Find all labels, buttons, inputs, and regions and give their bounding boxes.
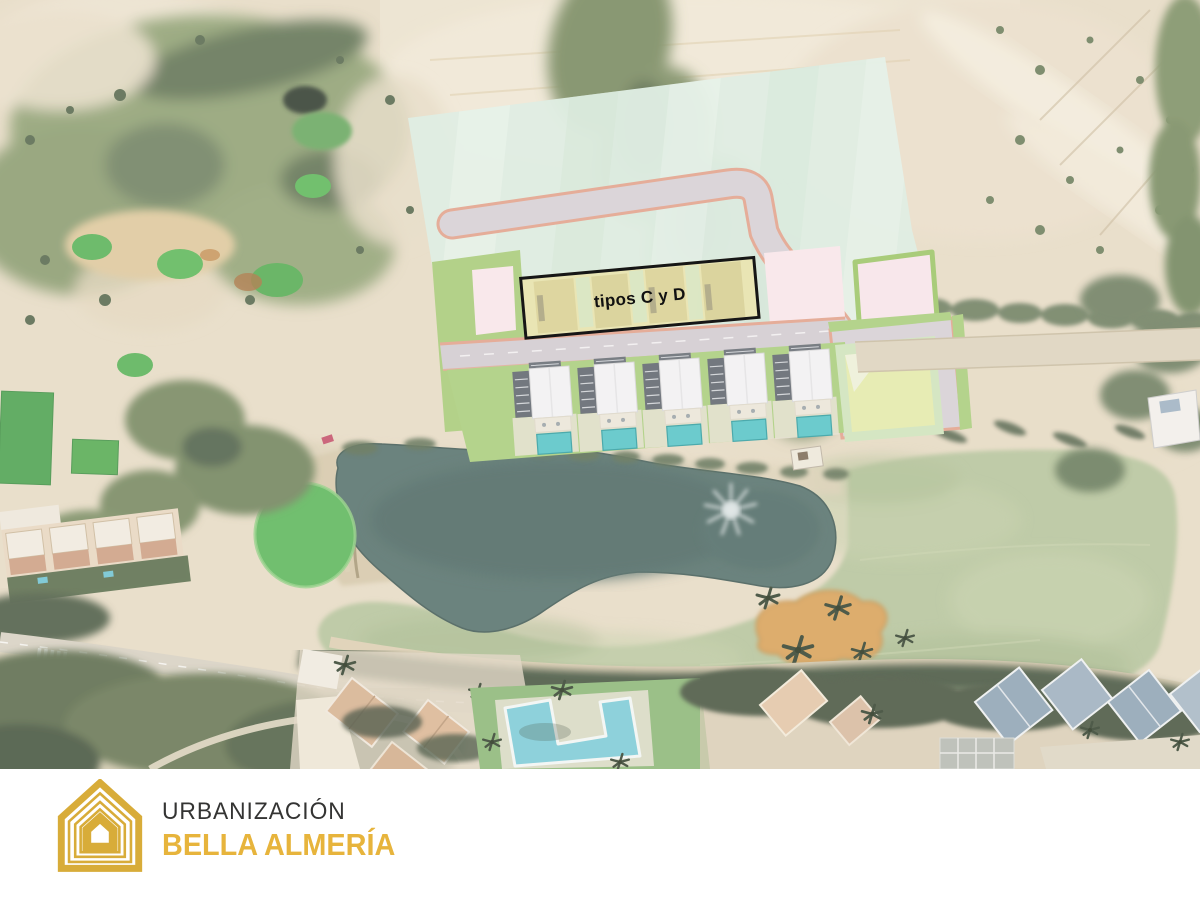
brand-subtitle: URBANIZACIÓN	[162, 799, 400, 825]
aerial-photo	[0, 0, 1200, 769]
footer-brand-bar: URBANIZACIÓN BELLA ALMERÍA	[0, 769, 1200, 900]
brand-house-icon	[52, 779, 148, 873]
aerial-photo-svg	[0, 0, 1200, 769]
site-plan-slide: tipos C y D URBANIZACIÓN BELLA ALMERÍA	[0, 0, 1200, 900]
photo-haze-2	[0, 0, 1200, 769]
plot-label: tipos C y D	[593, 284, 687, 312]
brand-text: URBANIZACIÓN BELLA ALMERÍA	[162, 779, 413, 863]
brand-lockup: URBANIZACIÓN BELLA ALMERÍA	[52, 779, 413, 873]
brand-title: BELLA ALMERÍA	[162, 827, 395, 863]
